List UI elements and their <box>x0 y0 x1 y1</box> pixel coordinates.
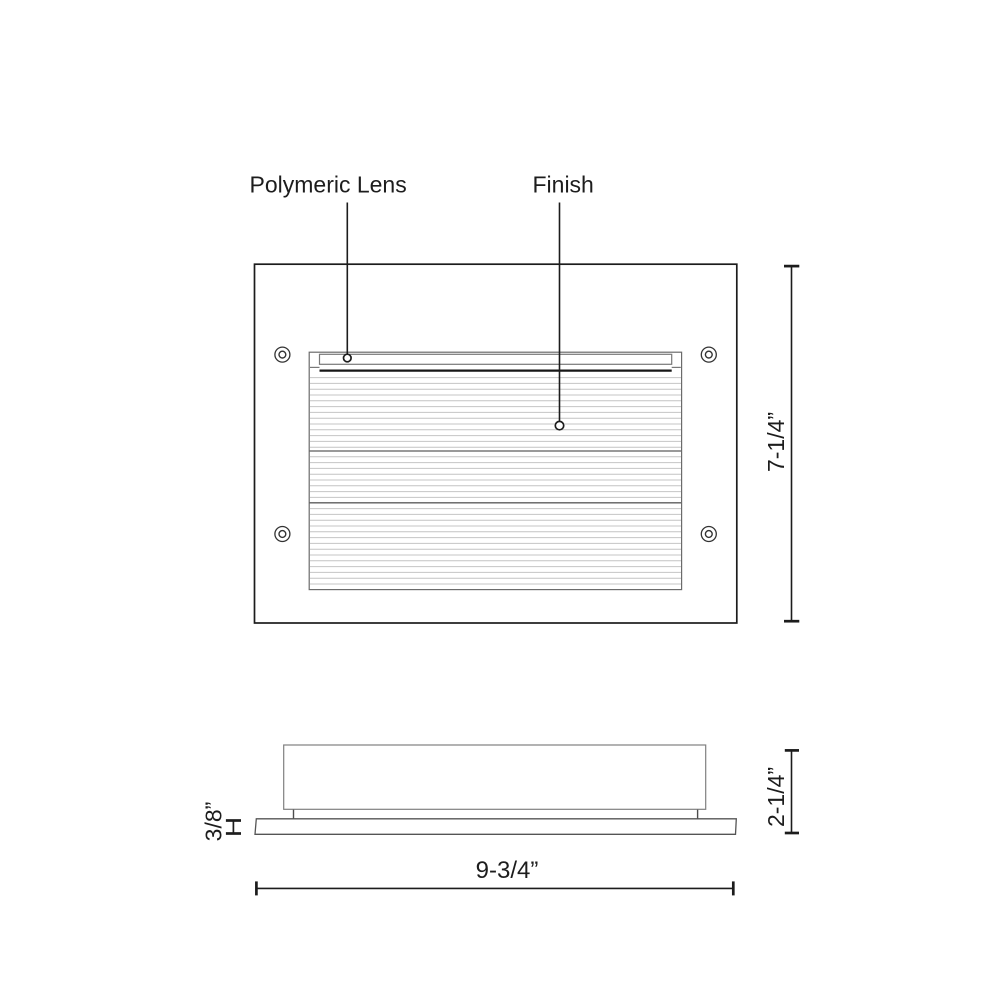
svg-text:7-1/4”: 7-1/4” <box>763 412 789 472</box>
svg-text:2-1/4”: 2-1/4” <box>763 767 789 827</box>
svg-text:3/8”: 3/8” <box>201 802 227 842</box>
svg-text:Polymeric Lens: Polymeric Lens <box>250 172 407 198</box>
svg-text:9-3/4”: 9-3/4” <box>476 857 539 884</box>
svg-text:Finish: Finish <box>533 172 594 198</box>
